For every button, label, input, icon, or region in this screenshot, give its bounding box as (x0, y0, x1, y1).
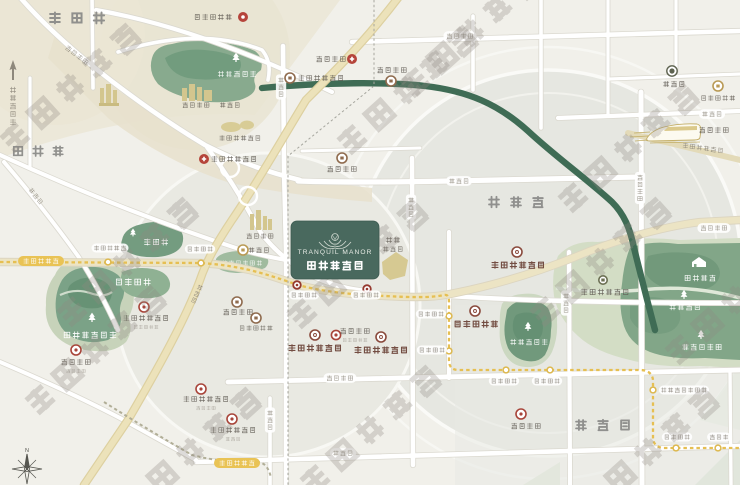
svg-text:N: N (25, 448, 29, 454)
svg-text:TRANQUIL MANOR: TRANQUIL MANOR (298, 249, 373, 256)
